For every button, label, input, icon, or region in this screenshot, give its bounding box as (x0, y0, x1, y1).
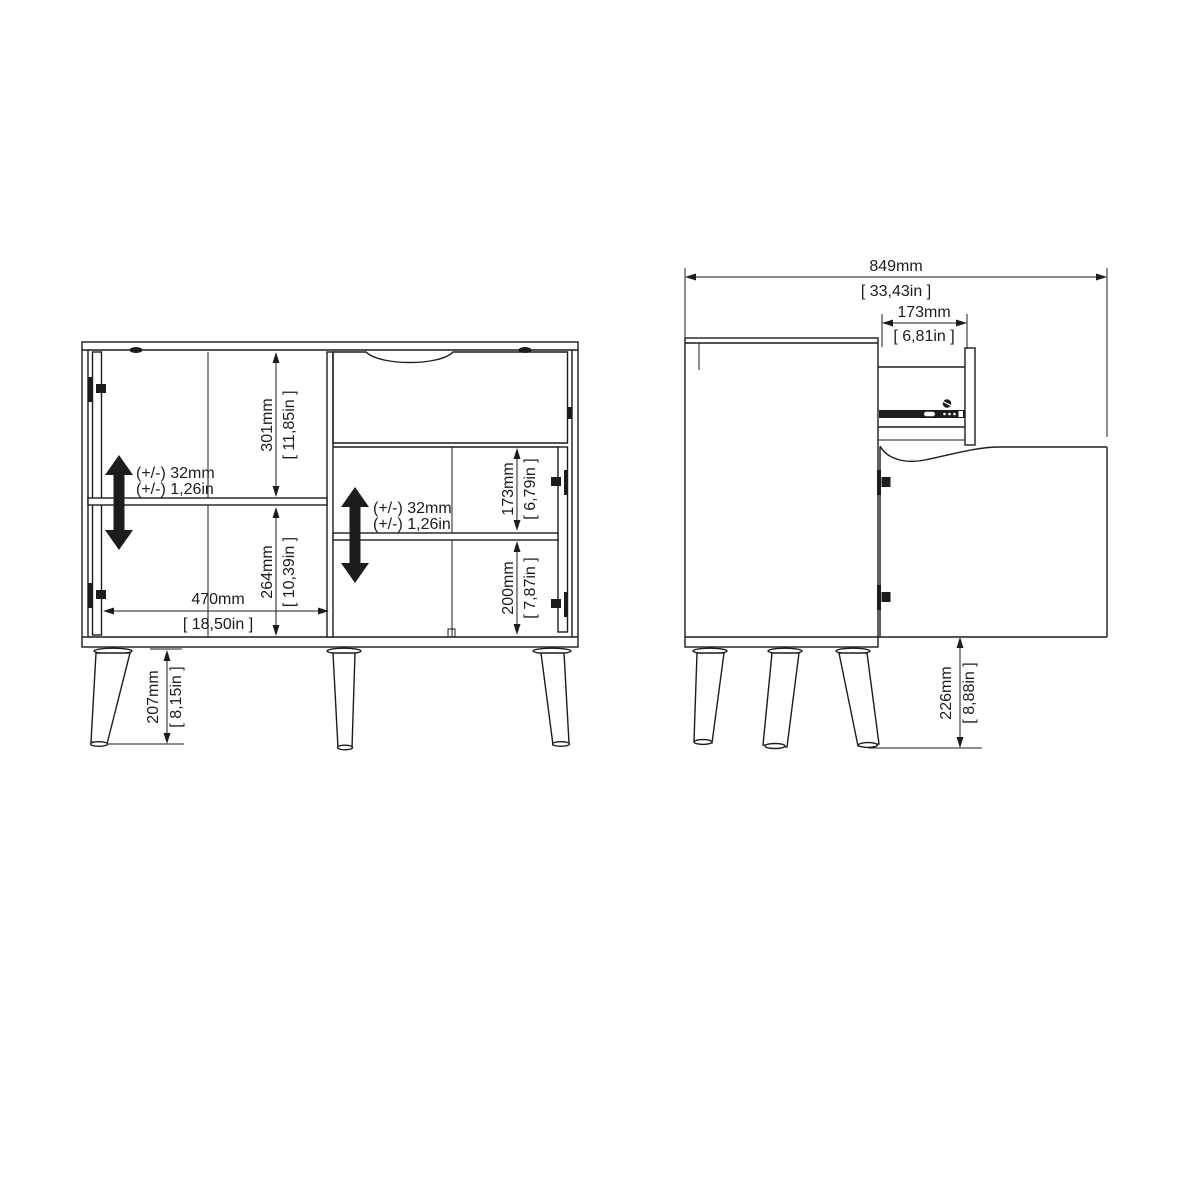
leg (839, 653, 879, 746)
furniture-dimension-drawing: 301mm [ 11,85in ] 264mm [ 10,39in ] 173m… (0, 0, 1200, 1200)
dim-label: [ 11,85in ] (281, 390, 298, 459)
front-view: 301mm [ 11,85in ] 264mm [ 10,39in ] 173m… (82, 342, 578, 750)
dim-label: [ 6,79in ] (522, 458, 539, 519)
drawer-front-with-handle-scoop (333, 352, 568, 443)
drawer-slide-rail-icon (879, 410, 965, 418)
open-drawer (878, 348, 975, 445)
right-adjustable-shelf (333, 533, 558, 540)
tolerance-label: (+/-) 32mm (373, 500, 452, 517)
drawer-front-panel (965, 348, 975, 445)
dim-drawer-extension: 173mm [ 6,81in ] (882, 304, 967, 349)
dim-right-upper-height: 173mm [ 6,79in ] (500, 448, 539, 531)
dim-label: 207mm (145, 670, 162, 723)
dim-label: [ 18,50in ] (183, 616, 253, 633)
dim-label: 173mm (897, 304, 950, 321)
dim-upper-section-height: 301mm [ 11,85in ] (259, 352, 298, 497)
dim-label: [ 10,39in ] (281, 537, 298, 607)
dim-label: [ 33,43in ] (861, 283, 931, 300)
dim-lower-section-height: 264mm [ 10,39in ] (259, 507, 298, 636)
dim-label: 226mm (938, 666, 955, 719)
open-door (877, 446, 1107, 637)
tolerance-label: (+/-) 1,26in (136, 481, 214, 498)
dim-label: 470mm (191, 591, 244, 608)
leg (91, 653, 130, 744)
center-partition (327, 352, 333, 637)
dim-label: 173mm (500, 462, 517, 515)
leg (541, 653, 569, 745)
tolerance-label: (+/-) 32mm (136, 465, 215, 482)
top-board-cam-icon (130, 347, 143, 353)
door-top-edge-handle-scoop (880, 446, 1107, 461)
door-hinge-icon (877, 470, 891, 610)
dim-label: 301mm (259, 398, 276, 451)
cabinet-side-structure (685, 338, 1107, 647)
cabinet-side-outline (685, 338, 878, 647)
side-view: 849mm [ 33,43in ] 173mm [ 6,81in ] 226mm… (685, 258, 1107, 749)
leg (763, 653, 799, 747)
dim-right-lower-height: 200mm [ 7,87in ] (500, 541, 539, 635)
dim-label: [ 8,15in ] (168, 666, 185, 727)
leg (694, 653, 724, 743)
dim-label: [ 7,87in ] (522, 557, 539, 618)
dim-side-leg-height: 226mm [ 8,88in ] (868, 637, 982, 748)
dim-label: [ 6,81in ] (893, 328, 954, 345)
side-legs (693, 648, 879, 748)
leg (333, 653, 355, 748)
dim-label: 200mm (500, 561, 517, 614)
top-board-cam-icon (519, 347, 532, 353)
tolerance-label: (+/-) 1,26in (373, 516, 451, 533)
dim-label: 849mm (869, 258, 922, 275)
dim-label: 264mm (259, 545, 276, 598)
front-legs (91, 648, 572, 750)
drawer-slide-bracket-icon (568, 407, 573, 419)
dim-label: [ 8,88in ] (961, 662, 978, 723)
